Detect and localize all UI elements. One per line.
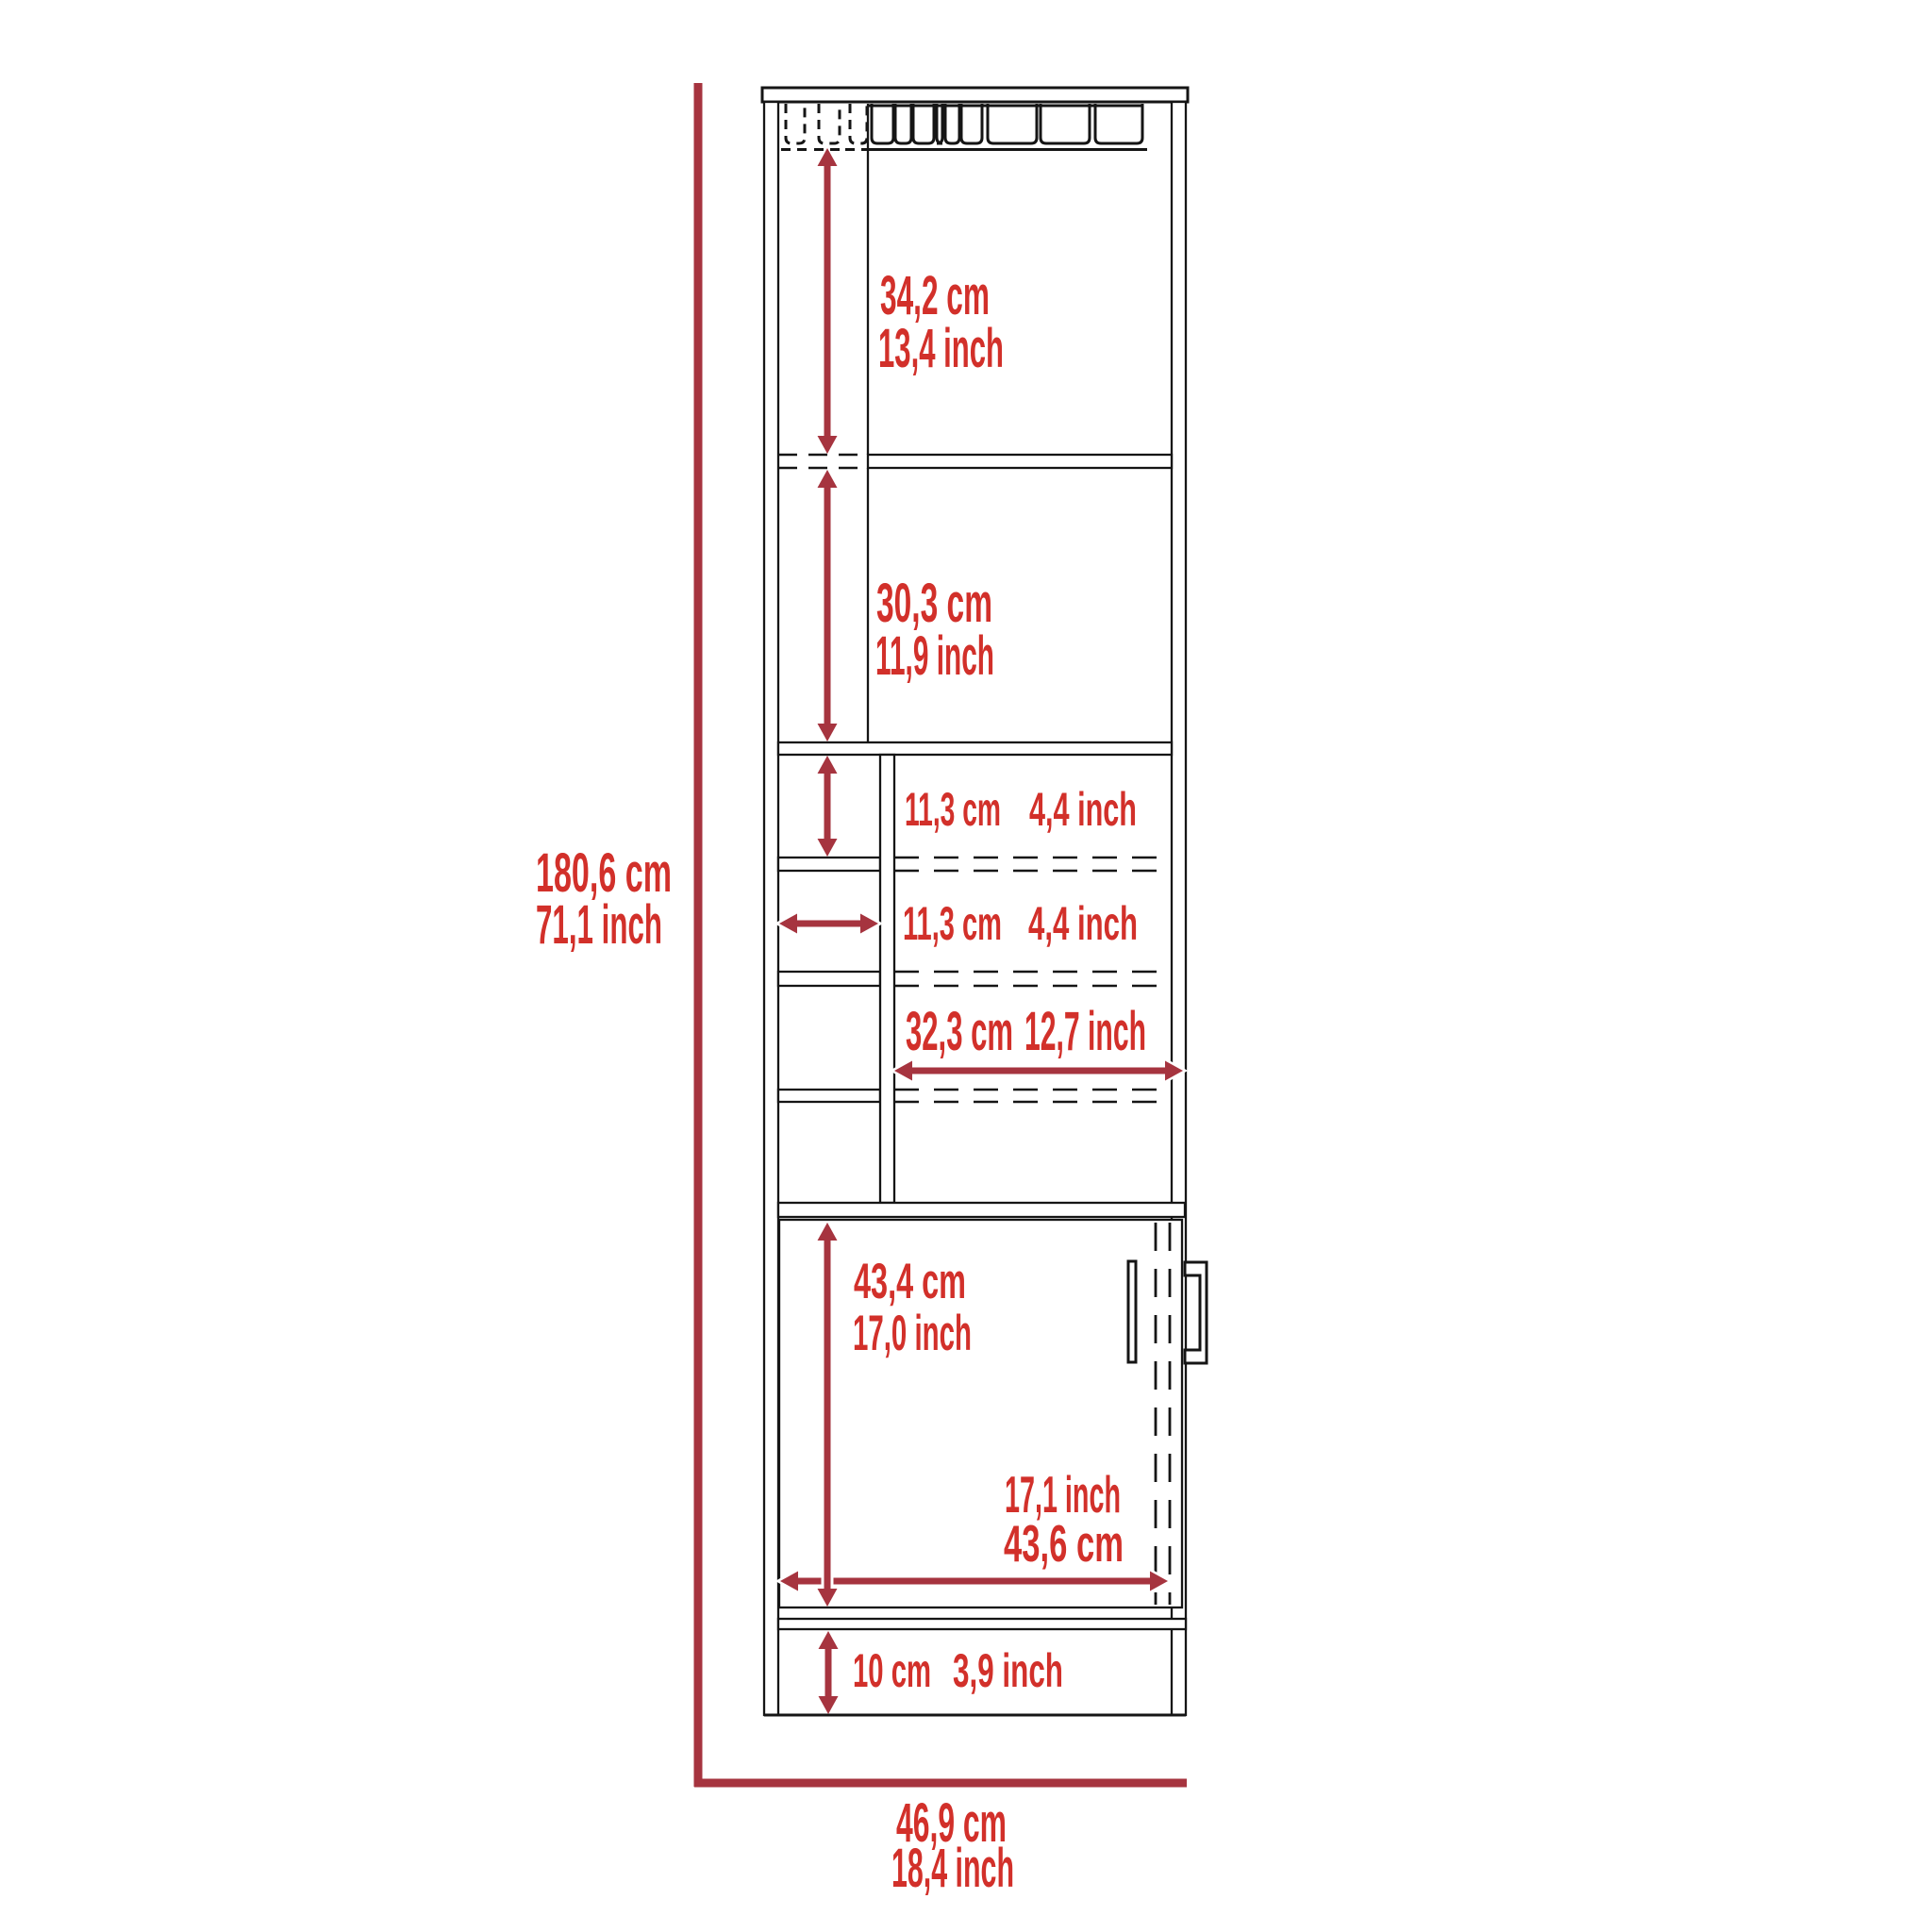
svg-text:4,4 inch: 4,4 inch — [1029, 783, 1137, 836]
svg-text:43,6 cm: 43,6 cm — [1004, 1514, 1124, 1573]
svg-text:11,3 cm: 11,3 cm — [905, 783, 1001, 836]
svg-text:12,7 inch: 12,7 inch — [1024, 1001, 1146, 1062]
svg-text:13,4 inch: 13,4 inch — [878, 318, 1004, 379]
svg-text:32,3 cm: 32,3 cm — [906, 1001, 1013, 1062]
svg-text:11,9 inch: 11,9 inch — [875, 625, 994, 687]
svg-text:18,4 inch: 18,4 inch — [891, 1838, 1014, 1899]
svg-text:4,4 inch: 4,4 inch — [1028, 897, 1138, 950]
svg-text:43,4 cm: 43,4 cm — [854, 1254, 966, 1309]
svg-text:3,9 inch: 3,9 inch — [953, 1644, 1063, 1697]
svg-text:17,0 inch: 17,0 inch — [853, 1306, 972, 1361]
svg-text:10 cm: 10 cm — [853, 1644, 931, 1697]
svg-text:11,3 cm: 11,3 cm — [903, 897, 1002, 950]
svg-text:71,1 inch: 71,1 inch — [536, 894, 662, 956]
